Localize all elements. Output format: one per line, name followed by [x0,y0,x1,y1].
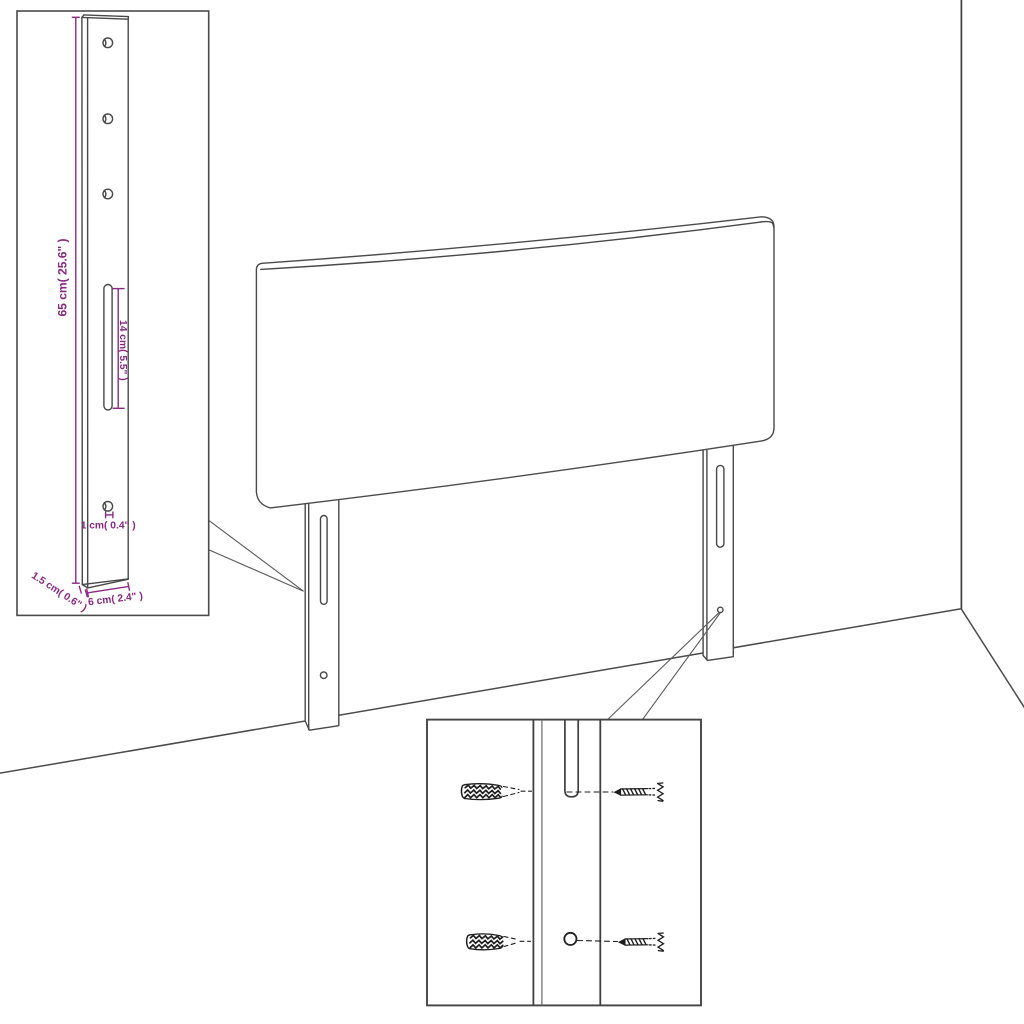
svg-text:65 cm( 25.6" ): 65 cm( 25.6" ) [56,238,70,316]
svg-text:1 cm( 0.4" ): 1 cm( 0.4" ) [81,521,136,532]
svg-text:14 cm( 5.5" ): 14 cm( 5.5" ) [117,320,128,381]
